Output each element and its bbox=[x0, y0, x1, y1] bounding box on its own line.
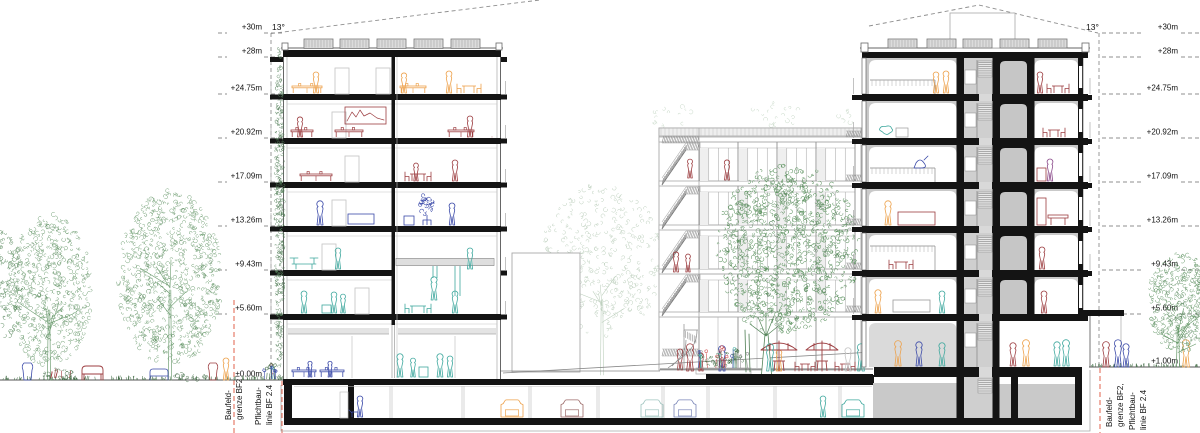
svg-text:+28m: +28m bbox=[1158, 47, 1179, 56]
svg-text:+17.09m: +17.09m bbox=[1147, 172, 1179, 181]
svg-text:+13.26m: +13.26m bbox=[1147, 216, 1179, 225]
svg-text:+30m: +30m bbox=[1158, 23, 1179, 32]
svg-text:Pflichtbau-: Pflichtbau- bbox=[254, 387, 263, 425]
svg-text:+1.00m: +1.00m bbox=[1151, 357, 1178, 366]
svg-text:grenze BF2,: grenze BF2, bbox=[1116, 383, 1125, 427]
svg-text:linie BF 2.4: linie BF 2.4 bbox=[265, 384, 274, 425]
svg-text:+28m: +28m bbox=[242, 47, 263, 56]
svg-text:Baufeld-: Baufeld- bbox=[224, 390, 233, 420]
svg-text:+9.43m: +9.43m bbox=[235, 260, 262, 269]
svg-text:+24.75m: +24.75m bbox=[1147, 84, 1179, 93]
svg-text:±0.00m: ±0.00m bbox=[235, 370, 262, 379]
svg-text:Baufeld-: Baufeld- bbox=[1105, 397, 1114, 427]
svg-text:+20.92m: +20.92m bbox=[231, 128, 263, 137]
svg-text:+13.26m: +13.26m bbox=[231, 216, 263, 225]
svg-text:+30m: +30m bbox=[242, 23, 263, 32]
svg-text:+5.60m: +5.60m bbox=[235, 304, 262, 313]
svg-text:+20.92m: +20.92m bbox=[1147, 128, 1179, 137]
svg-text:grenze BF2: grenze BF2 bbox=[235, 378, 244, 420]
svg-text:Pflichtbau-: Pflichtbau- bbox=[1128, 392, 1137, 430]
svg-text:+17.09m: +17.09m bbox=[231, 172, 263, 181]
svg-text:+24.75m: +24.75m bbox=[231, 84, 263, 93]
svg-text:linie BF 2.4: linie BF 2.4 bbox=[1139, 389, 1148, 430]
svg-text:13°: 13° bbox=[272, 22, 285, 32]
svg-text:13°: 13° bbox=[1086, 22, 1099, 32]
